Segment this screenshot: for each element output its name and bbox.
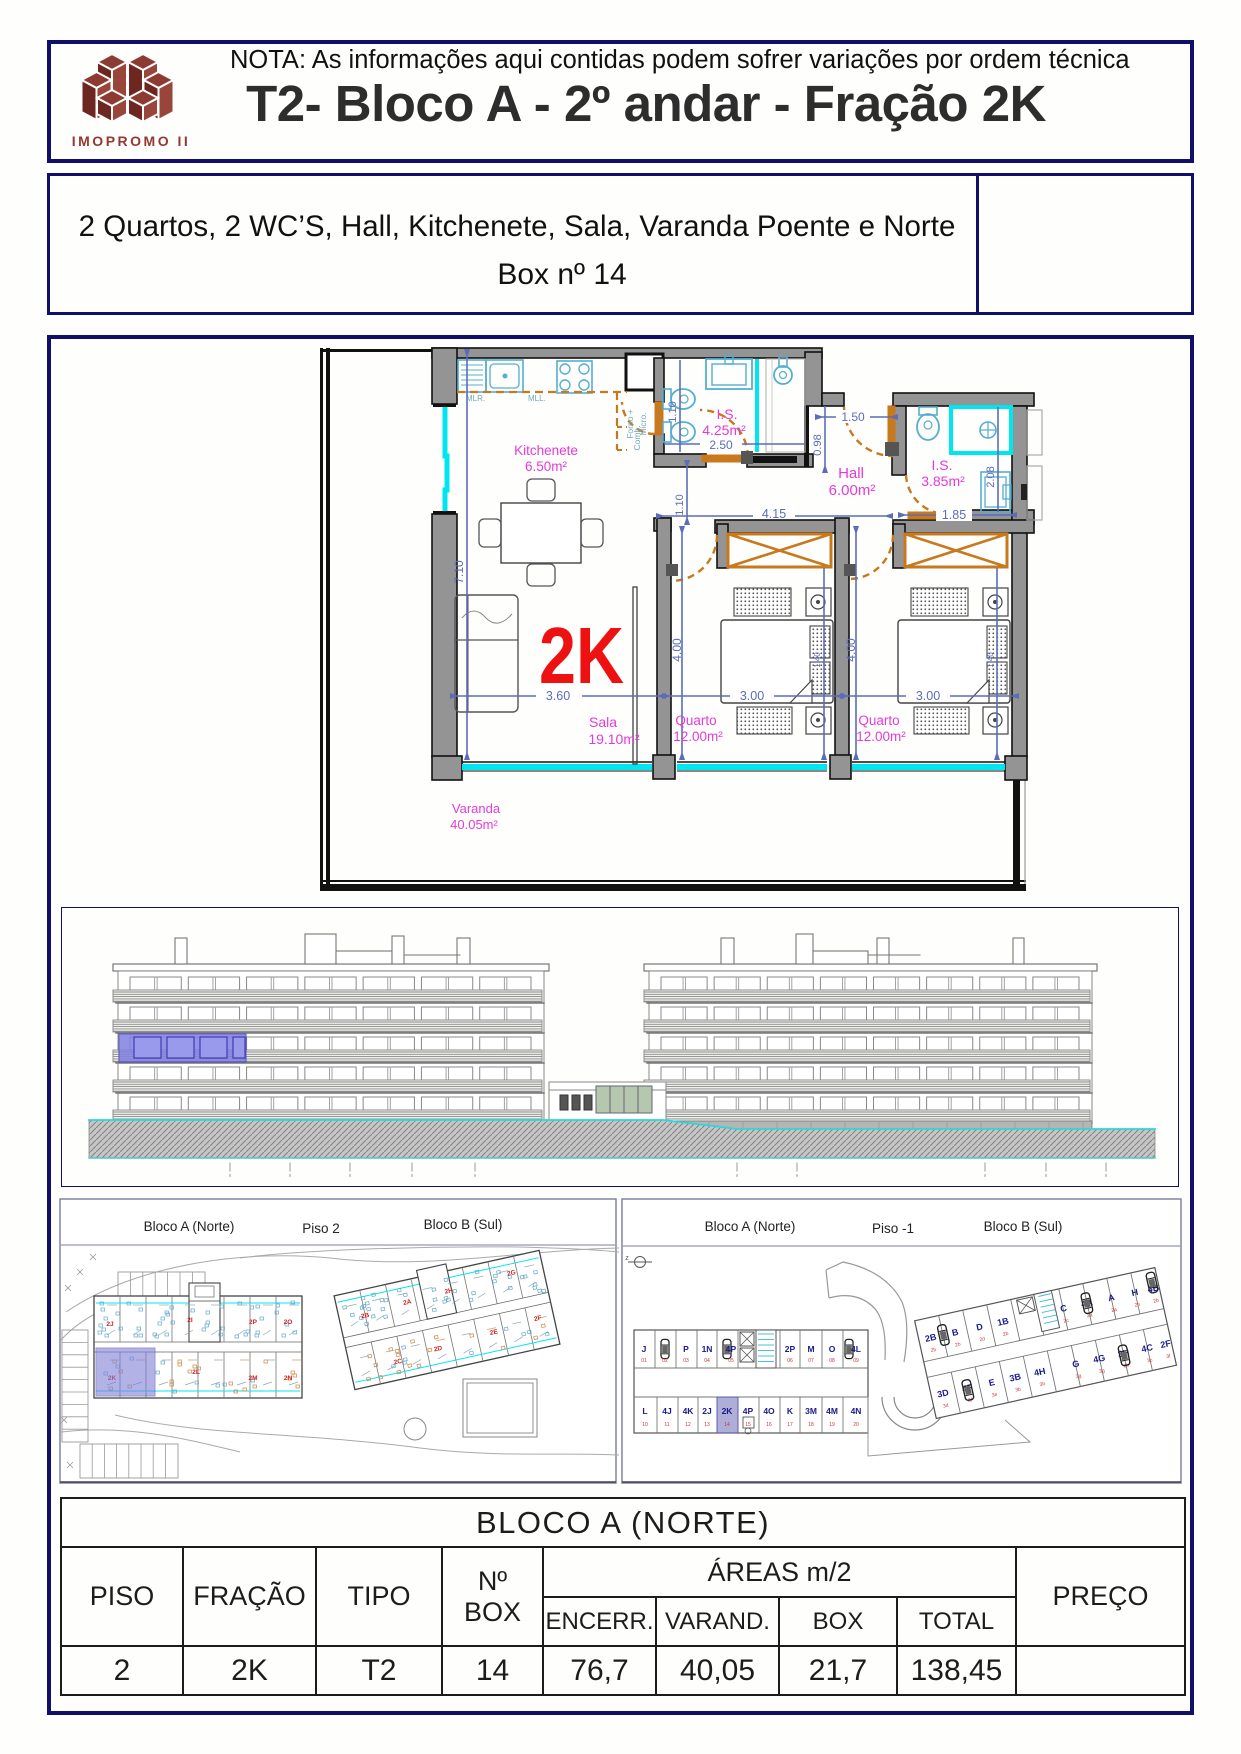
svg-text:P: P (683, 1344, 689, 1354)
svg-text:05: 05 (728, 1358, 734, 1364)
svg-text:MLR.: MLR. (466, 394, 485, 403)
svg-text:04: 04 (704, 1358, 710, 1364)
svg-text:2M: 2M (248, 1375, 257, 1382)
svg-text:12: 12 (685, 1422, 691, 1428)
svg-text:Piso 2: Piso 2 (302, 1221, 340, 1236)
svg-text:6.50m²: 6.50m² (525, 459, 568, 474)
svg-text:2J: 2J (106, 1321, 114, 1328)
svg-text:2O: 2O (284, 1319, 293, 1326)
svg-text:z: z (625, 1255, 629, 1262)
svg-text:1.50: 1.50 (841, 410, 865, 424)
svg-text:4.00: 4.00 (670, 638, 684, 662)
svg-text:18: 18 (808, 1422, 814, 1428)
svg-text:09: 09 (853, 1358, 859, 1364)
svg-text:Piso -1: Piso -1 (872, 1221, 914, 1236)
svg-text:02: 02 (662, 1358, 668, 1364)
svg-text:2L: 2L (192, 1369, 200, 1376)
svg-text:06: 06 (787, 1358, 793, 1364)
svg-text:03: 03 (683, 1358, 689, 1364)
svg-text:3M: 3M (805, 1406, 817, 1416)
svg-text:4L: 4L (851, 1344, 861, 1354)
svg-text:40.05m²: 40.05m² (450, 817, 498, 832)
svg-text:Kitchenete: Kitchenete (514, 443, 578, 458)
svg-text:1.85: 1.85 (942, 508, 966, 522)
svg-text:12.00m²: 12.00m² (856, 729, 906, 744)
svg-text:MLL.: MLL. (528, 394, 546, 403)
svg-text:Sala: Sala (589, 714, 617, 730)
svg-text:4K: 4K (683, 1406, 695, 1416)
svg-text:4O: 4O (763, 1406, 775, 1416)
svg-text:M: M (807, 1344, 814, 1354)
svg-text:4M: 4M (826, 1406, 838, 1416)
svg-text:07: 07 (808, 1358, 814, 1364)
svg-text:19.10m²: 19.10m² (588, 731, 640, 747)
svg-text:4P: 4P (726, 1344, 737, 1354)
svg-text:I.S.: I.S. (716, 406, 737, 422)
svg-text:Quarto: Quarto (858, 713, 899, 728)
svg-text:2K: 2K (539, 611, 624, 700)
svg-text:2.08: 2.08 (985, 466, 997, 487)
svg-text:Bloco A (Norte): Bloco A (Norte) (144, 1219, 235, 1234)
svg-text:1.10: 1.10 (674, 494, 686, 515)
svg-text:O: O (829, 1344, 836, 1354)
svg-text:Comb.: Comb. (632, 425, 642, 450)
svg-text:Bloco B (Sul): Bloco B (Sul) (984, 1219, 1063, 1234)
svg-text:Varanda: Varanda (452, 801, 501, 816)
svg-text:Hall: Hall (838, 465, 864, 482)
svg-text:11: 11 (664, 1422, 669, 1428)
svg-text:4.00: 4.00 (844, 638, 858, 662)
svg-text:01: 01 (641, 1358, 647, 1364)
svg-text:I.S.: I.S. (931, 457, 952, 473)
svg-text:13: 13 (704, 1422, 710, 1428)
svg-text:Quarto: Quarto (675, 713, 716, 728)
svg-text:3.00: 3.00 (916, 689, 940, 703)
svg-text:2J: 2J (702, 1406, 712, 1416)
svg-text:J: J (642, 1344, 647, 1354)
svg-text:2P: 2P (249, 1319, 258, 1326)
svg-text:1.10: 1.10 (667, 401, 679, 422)
svg-text:Bloco B (Sul): Bloco B (Sul) (424, 1217, 503, 1232)
svg-text:1N: 1N (702, 1344, 713, 1354)
svg-text:4.25m²: 4.25m² (702, 422, 746, 438)
svg-text:0.98: 0.98 (812, 434, 824, 455)
svg-text:2N: 2N (284, 1375, 293, 1382)
svg-text:4.15: 4.15 (762, 507, 786, 521)
svg-text:4J: 4J (662, 1406, 672, 1416)
svg-text:2K: 2K (722, 1406, 734, 1416)
svg-text:2I: 2I (187, 1317, 193, 1324)
svg-text:3.85m²: 3.85m² (921, 473, 965, 489)
svg-text:10: 10 (642, 1422, 648, 1428)
svg-text:14: 14 (724, 1422, 730, 1428)
svg-text:19: 19 (829, 1422, 835, 1428)
svg-text:16: 16 (766, 1422, 772, 1428)
svg-text:7.10: 7.10 (452, 560, 466, 584)
svg-text:K: K (787, 1406, 794, 1416)
svg-text:4N: 4N (851, 1406, 862, 1416)
svg-text:4P: 4P (743, 1406, 754, 1416)
svg-text:6.00m²: 6.00m² (829, 482, 876, 499)
svg-text:L: L (642, 1406, 647, 1416)
svg-text:2P: 2P (785, 1344, 796, 1354)
svg-text:15: 15 (745, 1422, 751, 1428)
svg-text:Bloco A (Norte): Bloco A (Norte) (705, 1219, 796, 1234)
svg-text:1.40: 1.40 (986, 652, 995, 668)
svg-text:3.00: 3.00 (740, 689, 764, 703)
svg-text:2.50: 2.50 (709, 438, 733, 452)
svg-text:1.40: 1.40 (813, 652, 822, 668)
svg-text:08: 08 (829, 1358, 835, 1364)
svg-text:17: 17 (787, 1422, 793, 1428)
svg-text:12.00m²: 12.00m² (673, 729, 723, 744)
svg-text:20: 20 (853, 1422, 859, 1428)
